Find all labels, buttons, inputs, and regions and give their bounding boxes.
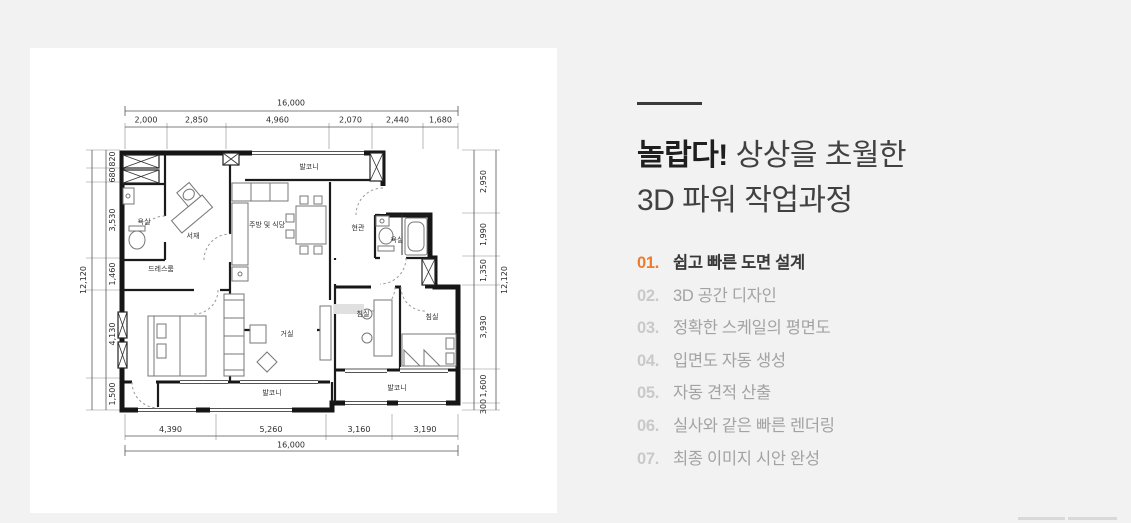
step-number: 07. [637,450,673,469]
tv-cabinet [320,306,331,360]
page-title: 놀랍다! 상상을 초월한3D 파워 작업과정 [637,133,1057,223]
step-item-02[interactable]: 02. 3D 공간 디자인 [637,282,1057,315]
room-label-bedroom1: 침실 [357,309,370,318]
dim-left-1: 680 [108,167,117,182]
dim-total-height-right: 12,120 [500,266,509,294]
kitchen-counter [232,183,288,281]
step-label: 쉽고 빠른 도면 설계 [673,249,805,273]
dim-total-width-top: 16,000 [277,99,305,108]
step-label: 최종 이미지 시안 완성 [673,445,820,469]
sofa [224,294,244,376]
accent-line [637,102,702,105]
room-label-bath2: 욕실 [391,235,404,244]
dim-total-height-left: 12,120 [79,266,88,294]
step-label: 입면도 자동 생성 [673,347,786,371]
step-label: 정확한 스케일의 평면도 [673,314,830,338]
room-label-study: 서재 [187,231,200,240]
process-steps-list: 01. 쉽고 빠른 도면 설계 02. 3D 공간 디자인 03. 정확한 스케… [637,249,1057,477]
page-title-bold: 놀랍다! [637,139,728,172]
dining-table [286,196,326,254]
step-item-05[interactable]: 05. 자동 견적 산출 [637,379,1057,412]
step-label: 자동 견적 산출 [673,379,771,403]
dim-left-0: 820 [108,151,117,166]
room-label-entrance: 현관 [352,223,365,232]
room-label-dress: 드레스룸 [148,264,174,273]
step-label: 3D 공간 디자인 [673,282,776,306]
dim-right-3: 3,930 [479,316,488,339]
step-item-07[interactable]: 07. 최종 이미지 시안 완성 [637,445,1057,478]
dim-top-3: 2,070 [339,116,362,125]
carousel-scrollbar-left[interactable] [1018,517,1065,520]
step-item-04[interactable]: 04. 입면도 자동 생성 [637,347,1057,380]
step-number: 01. [637,254,673,273]
room-label-bath1: 욕실 [138,217,151,226]
dim-left-2: 3,530 [108,209,117,232]
dim-left-3: 1,460 [108,263,117,286]
floor-cushion [257,352,277,372]
dim-top-4: 2,440 [386,116,409,125]
dim-left-4: 4,130 [108,323,117,346]
coffee-table [250,325,266,343]
dim-right-2: 1,350 [479,259,488,282]
room-label-bedroom2: 침실 [426,312,439,321]
step-number: 04. [637,352,673,371]
step-item-06[interactable]: 06. 실사와 같은 빠른 렌더링 [637,412,1057,445]
step-item-01[interactable]: 01. 쉽고 빠른 도면 설계 [637,249,1057,282]
floorplan-card: 16,000 2,000 2,850 4,960 2,070 2,440 1,6… [30,48,557,513]
intro-panel: 놀랍다! 상상을 초월한3D 파워 작업과정 01. 쉽고 빠른 도면 설계 0… [637,95,1057,477]
furniture [123,181,456,376]
dim-bottom-2: 3,160 [348,425,371,434]
step-number: 02. [637,287,673,306]
step-number: 05. [637,384,673,403]
bedroom-bed [402,334,456,366]
room-label-balcony-right: 발코니 [387,383,406,392]
dim-left-5: 1,500 [108,383,117,406]
room-label-balcony-top: 발코니 [299,162,318,171]
dim-top-5: 1,680 [429,116,452,125]
dim-total-width-bottom: 16,000 [277,441,305,450]
dim-bottom-0: 4,390 [159,425,182,434]
room-label-kitchen: 주방 및 식당 [249,220,286,229]
step-item-03[interactable]: 03. 정확한 스케일의 평면도 [637,314,1057,347]
dim-top-0: 2,000 [135,116,158,125]
dim-bottom-1: 5,260 [260,425,283,434]
page-title-rest: 상상을 초월한 [728,139,906,172]
dim-right-0: 2,950 [479,170,488,193]
dim-right-1: 1,990 [479,223,488,246]
step-label: 실사와 같은 빠른 렌더링 [673,412,835,436]
dim-top-2: 4,960 [266,116,289,125]
master-bed [148,316,206,376]
carousel-scrollbar-right[interactable] [1068,517,1117,520]
bedroom-desk [362,300,392,356]
step-number: 03. [637,319,673,338]
dim-right-4: 1,600 [479,375,488,398]
dim-right-5: 300 [479,399,488,414]
step-number: 06. [637,417,673,436]
room-label-living: 거실 [281,329,294,338]
dim-top-1: 2,850 [185,116,208,125]
floorplan-image: 16,000 2,000 2,850 4,960 2,070 2,440 1,6… [30,48,557,513]
dim-bottom-3: 3,190 [414,425,437,434]
room-label-balcony-left: 발코니 [262,388,281,397]
page-title-line2: 3D 파워 작업과정 [637,184,853,217]
